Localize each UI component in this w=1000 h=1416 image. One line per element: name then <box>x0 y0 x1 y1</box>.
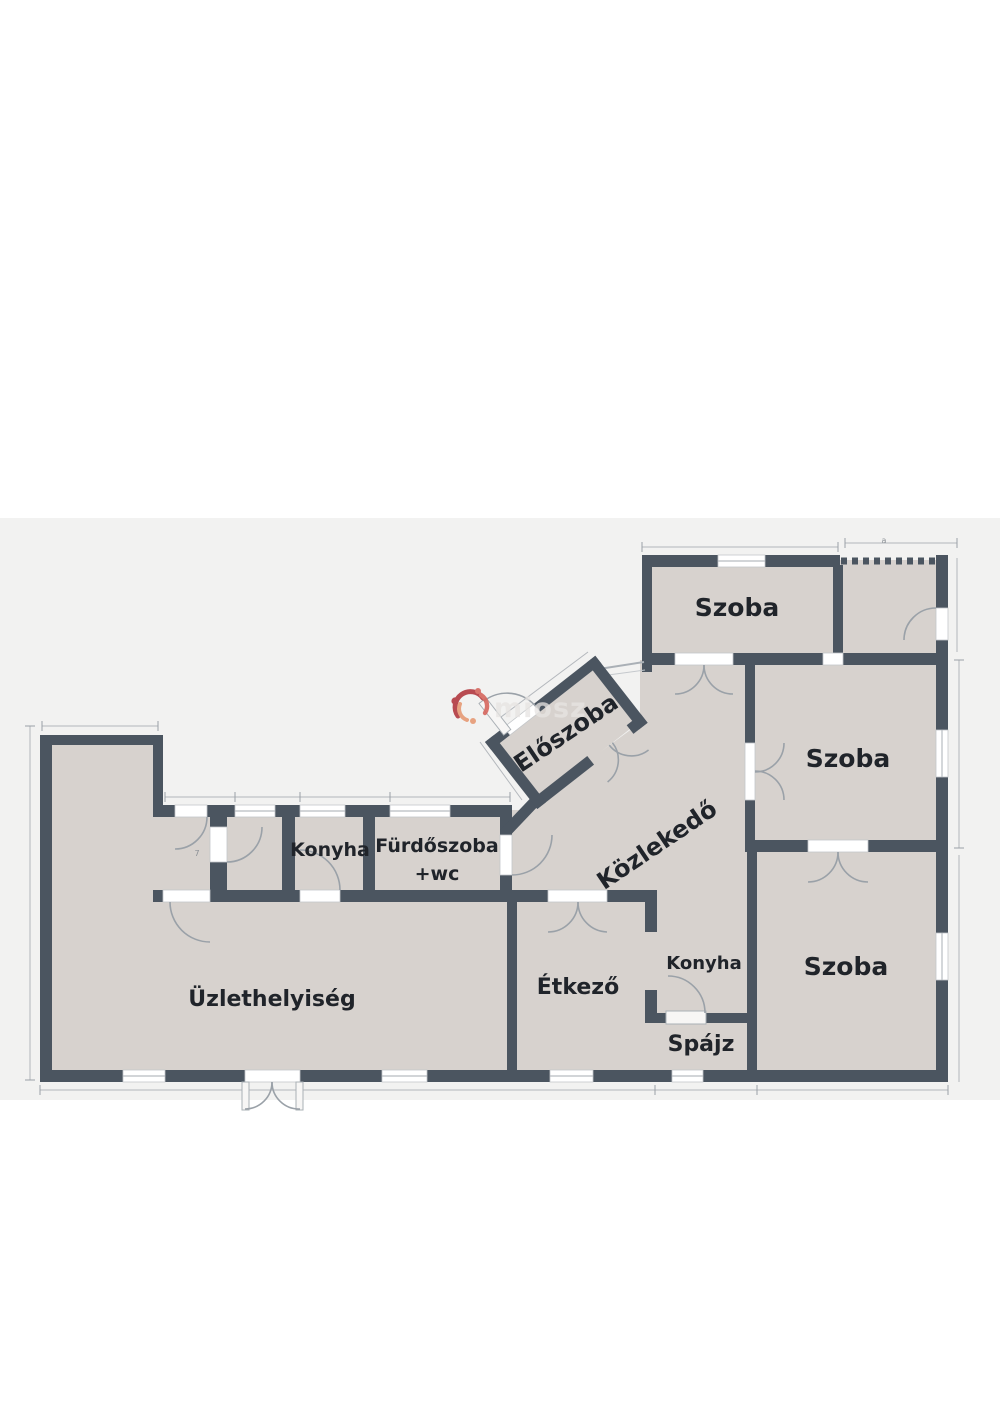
door-opening <box>675 653 733 665</box>
room-label-furdoszoba-wc: +wc <box>415 863 460 885</box>
room-label-konyha-left: Konyha <box>290 839 370 861</box>
door-opening <box>210 827 227 862</box>
door-opening <box>936 608 948 640</box>
window <box>823 653 843 665</box>
room-label-etkezo: Étkező <box>537 974 619 1000</box>
door-leaf <box>666 1011 706 1024</box>
door-opening <box>245 1070 300 1082</box>
room-label-szoba-top: Szoba <box>695 593 780 622</box>
door-opening <box>500 835 512 875</box>
door-leaf <box>242 1082 249 1110</box>
room-label-szoba-bottom: Szoba <box>804 952 889 981</box>
room-label-szoba-right: Szoba <box>806 744 891 773</box>
door-opening <box>548 890 607 902</box>
room-label-furdoszoba: Fürdőszoba <box>375 835 498 857</box>
door-leaf <box>296 1082 303 1110</box>
dim-mark-entry: 7 <box>194 849 199 858</box>
floorplan-canvas: Szoba Szoba Szoba Előszoba Közlekedő Kon… <box>0 0 1000 1416</box>
door-opening <box>163 890 210 902</box>
door-opening <box>745 743 755 800</box>
door-opening <box>300 890 340 902</box>
floorplan-page: Szoba Szoba Szoba Előszoba Közlekedő Kon… <box>0 0 1000 1416</box>
watermark-text: miosz <box>494 693 587 724</box>
door-opening <box>175 805 207 817</box>
room-label-spajz: Spájz <box>668 1032 735 1057</box>
door-opening <box>808 840 868 852</box>
dim-mark-terrace: a <box>882 536 887 545</box>
room-label-uzlethelyiseg: Üzlethelyiség <box>188 986 355 1012</box>
room-label-konyha-right: Konyha <box>666 953 742 974</box>
